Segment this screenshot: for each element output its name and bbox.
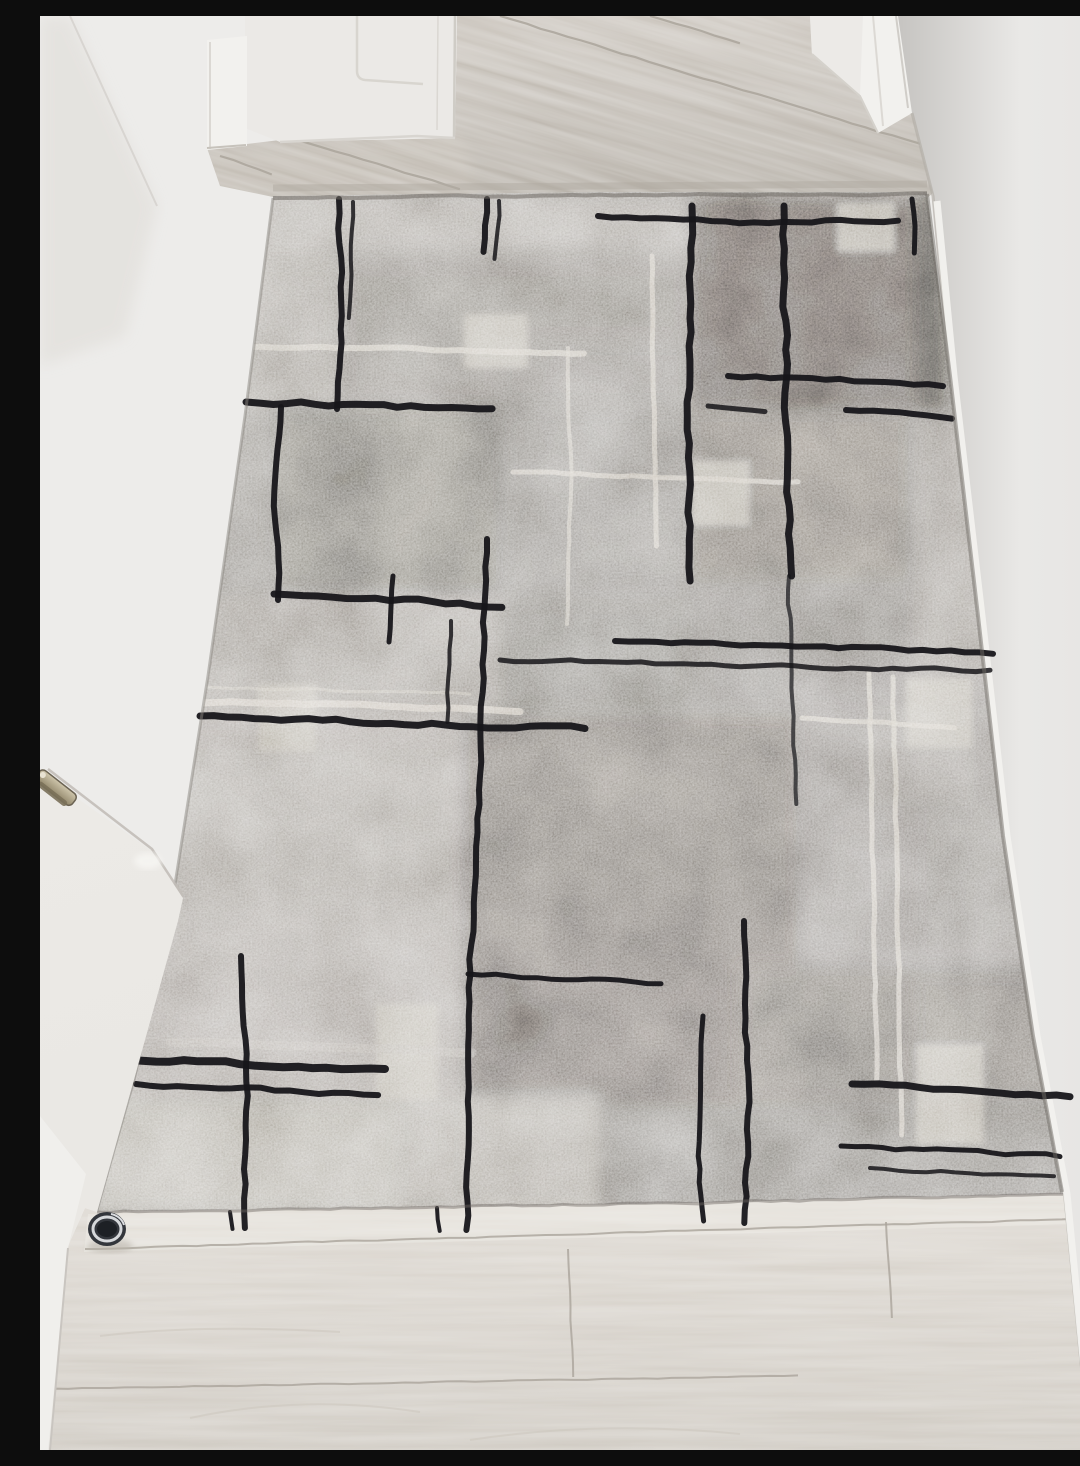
floor-rug-edge-shade (273, 184, 927, 188)
hallway-photo: Photograph of a hallway: gray abstract-p… (40, 16, 1080, 1450)
left-door-stile-line (437, 16, 438, 130)
rug-bl-v-center-long (687, 206, 693, 581)
door-stopper-core (97, 1221, 117, 1237)
door-corner-highlight (134, 853, 162, 869)
door-stopper (88, 1212, 126, 1246)
rug-bl-v-small-mid (389, 576, 393, 642)
rug-bl-fringe-1 (230, 1212, 233, 1229)
left-door-edge-line (454, 16, 455, 138)
scene-svg (40, 16, 1080, 1450)
left-door-frame-panel (245, 16, 457, 142)
left-door-casing (207, 36, 247, 150)
